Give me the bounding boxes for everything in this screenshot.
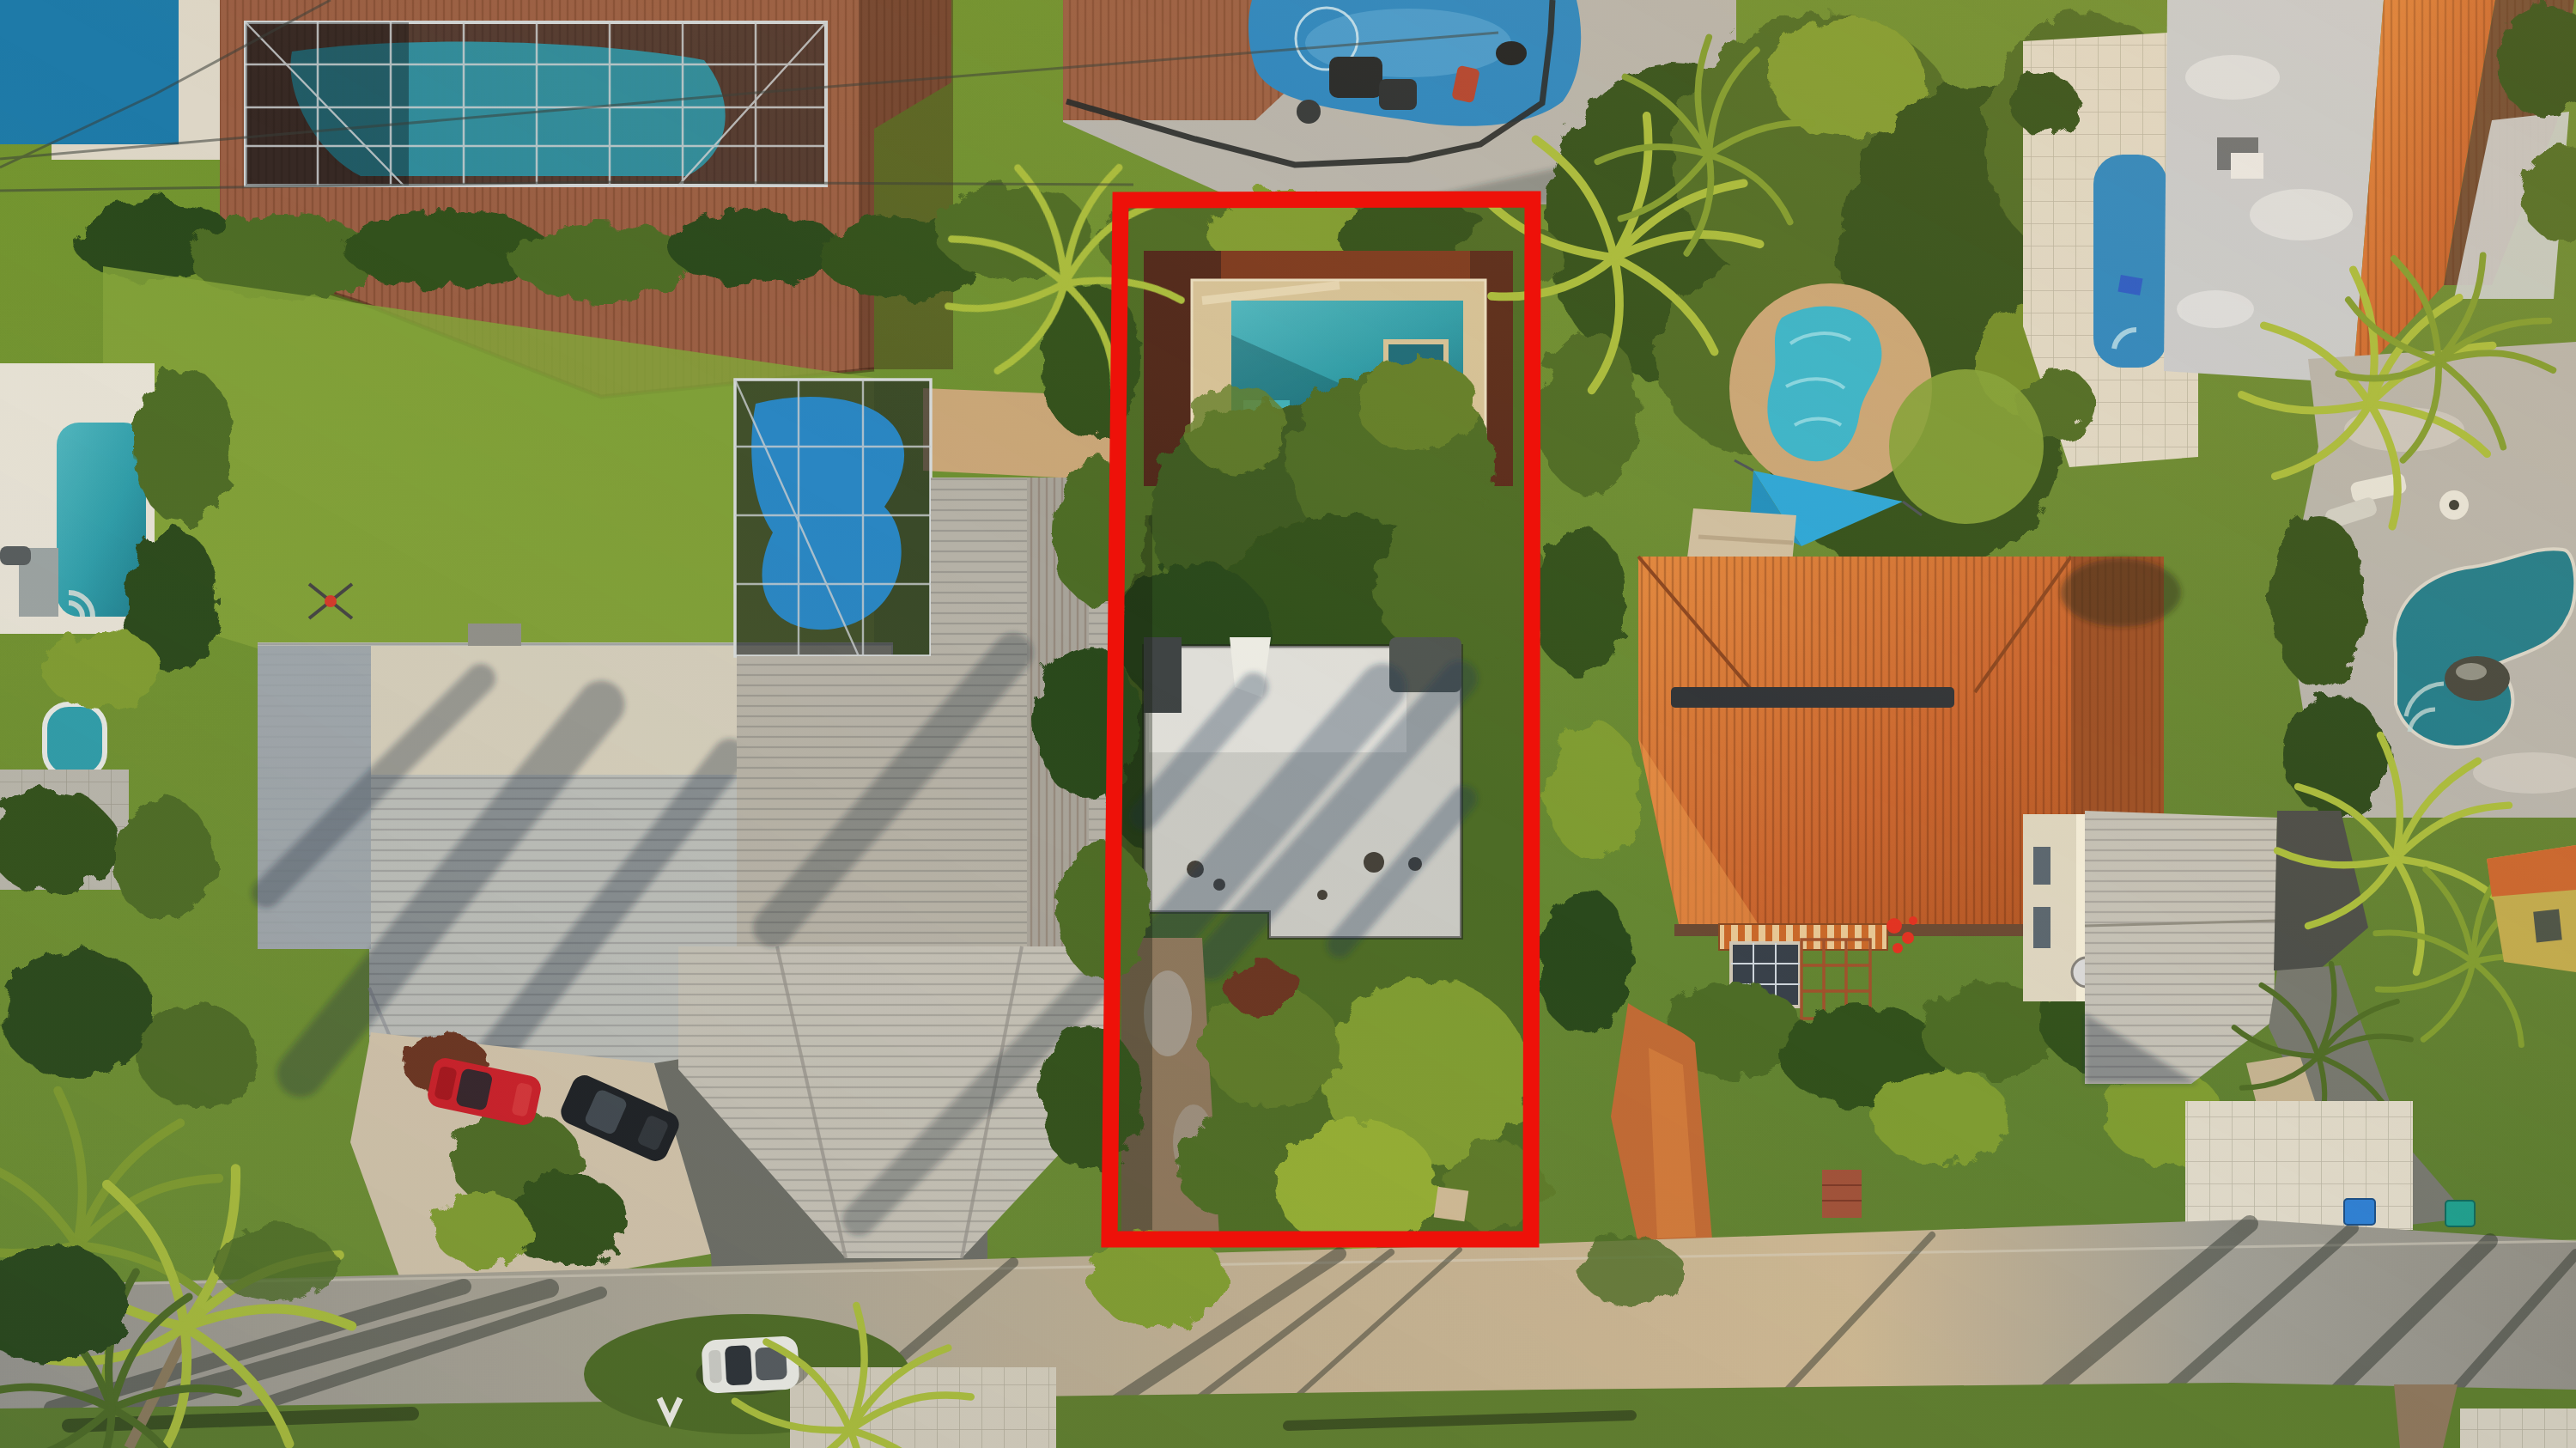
light-grade-overlay — [0, 0, 2576, 1448]
aerial-photo-stage — [0, 0, 2576, 1448]
aerial-photo — [0, 0, 2576, 1448]
